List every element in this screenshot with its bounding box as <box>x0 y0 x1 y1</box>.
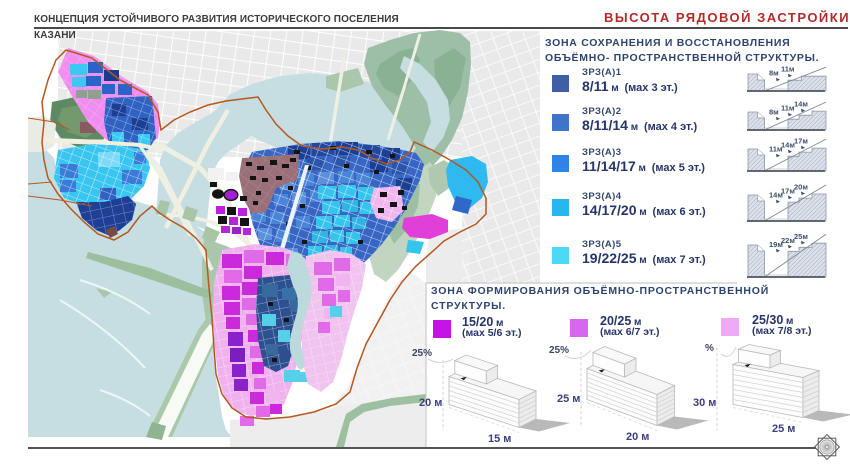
svg-text:20 м: 20 м <box>626 431 649 443</box>
svg-text:25%: 25% <box>549 345 569 356</box>
svg-text:11м: 11м <box>781 104 795 113</box>
svg-text:25 м: 25 м <box>557 393 580 405</box>
svg-text:14м: 14м <box>794 100 808 109</box>
svg-text:8м: 8м <box>769 69 779 78</box>
svg-text:17м: 17м <box>794 137 808 146</box>
svg-text:%: % <box>705 343 714 354</box>
svg-text:30 м: 30 м <box>693 397 716 409</box>
svg-text:20 м: 20 м <box>419 397 442 409</box>
svg-text:25%: 25% <box>412 348 432 359</box>
svg-text:15 м: 15 м <box>488 433 511 445</box>
svg-text:25 м: 25 м <box>772 423 795 435</box>
svg-text:11м: 11м <box>781 65 795 74</box>
svg-text:25м: 25м <box>794 232 808 241</box>
svg-text:20м: 20м <box>794 183 808 192</box>
svg-text:8м: 8м <box>769 108 779 117</box>
